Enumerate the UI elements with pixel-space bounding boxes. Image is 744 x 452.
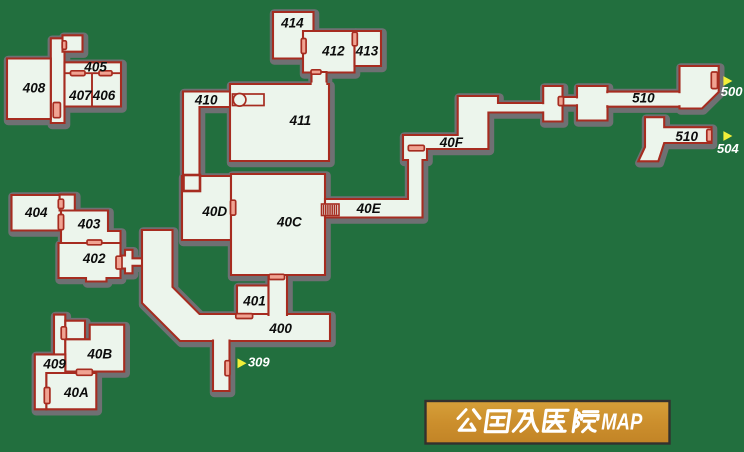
svg-text:40A: 40A	[63, 385, 89, 400]
svg-text:40E: 40E	[356, 201, 382, 216]
svg-text:500: 500	[721, 84, 743, 99]
svg-text:400: 400	[268, 321, 292, 336]
svg-text:40B: 40B	[86, 347, 112, 362]
svg-text:40C: 40C	[276, 215, 302, 230]
svg-text:510: 510	[632, 91, 655, 106]
svg-text:309: 309	[248, 355, 270, 370]
svg-text:413: 413	[355, 44, 379, 59]
svg-text:401: 401	[242, 294, 266, 309]
svg-text:40F: 40F	[439, 135, 464, 150]
svg-text:410: 410	[194, 93, 218, 108]
svg-text:402: 402	[82, 251, 106, 266]
svg-text:407: 407	[68, 88, 93, 103]
svg-text:504: 504	[717, 141, 739, 156]
svg-text:MAP: MAP	[601, 409, 642, 435]
svg-text:409: 409	[42, 357, 66, 372]
svg-text:412: 412	[321, 44, 345, 59]
svg-text:406: 406	[92, 88, 116, 103]
svg-text:510: 510	[675, 129, 698, 144]
svg-text:408: 408	[22, 80, 46, 95]
svg-text:40D: 40D	[201, 204, 227, 219]
svg-text:414: 414	[280, 16, 304, 31]
svg-text:405: 405	[83, 59, 107, 74]
svg-text:411: 411	[289, 113, 312, 128]
svg-text:403: 403	[77, 217, 101, 232]
svg-text:404: 404	[24, 205, 48, 220]
